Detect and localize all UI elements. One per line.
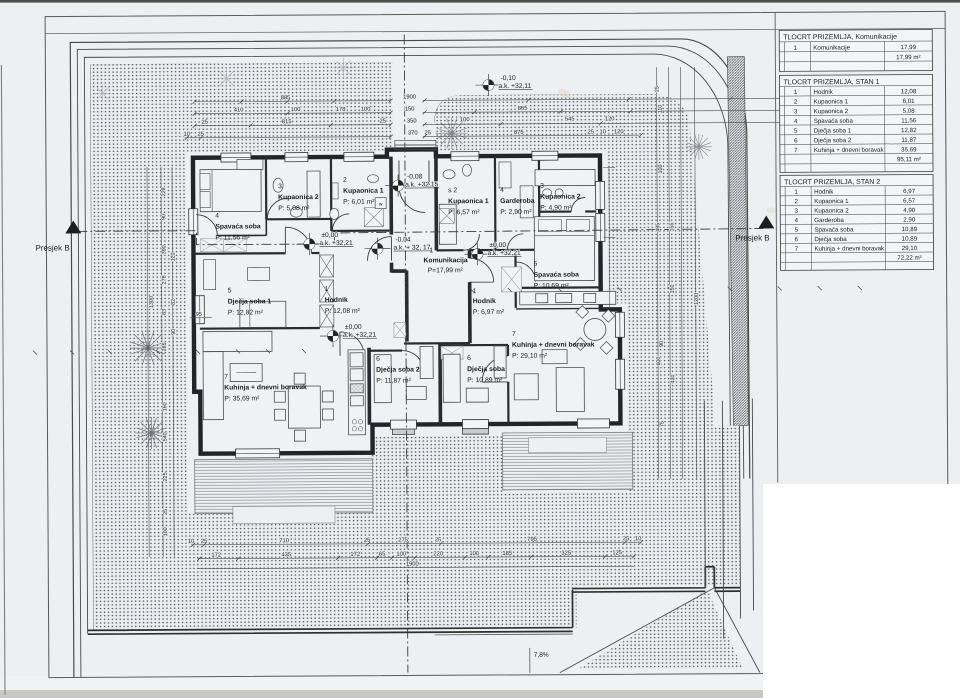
svg-text:4,90: 4,90	[903, 207, 916, 214]
svg-text:Kupaonica 1: Kupaonica 1	[814, 98, 849, 105]
svg-text:25: 25	[655, 86, 661, 92]
svg-text:72,22 m²: 72,22 m²	[897, 255, 921, 262]
svg-text:4: 4	[500, 187, 504, 194]
svg-text:430: 430	[670, 374, 676, 383]
svg-text:Komunikacije: Komunikacije	[813, 44, 850, 51]
svg-text:Hodnik: Hodnik	[814, 189, 834, 196]
svg-text:25: 25	[198, 132, 204, 138]
svg-text:P: 29,10 m²: P: 29,10 m²	[512, 353, 548, 360]
svg-text:228: 228	[161, 187, 167, 196]
svg-text:P: 10,89 m²: P: 10,89 m²	[467, 377, 503, 384]
svg-text:125: 125	[612, 550, 622, 556]
svg-text:540: 540	[162, 432, 168, 441]
svg-text:83: 83	[162, 309, 168, 315]
svg-text:100: 100	[361, 107, 371, 113]
svg-text:Dječja soba: Dječja soba	[467, 366, 505, 373]
svg-text:220: 220	[433, 551, 443, 557]
svg-text:17,99: 17,99	[901, 44, 917, 51]
svg-text:P: 2,90 m²: P: 2,90 m²	[500, 209, 532, 216]
svg-text:Spavaća soba: Spavaća soba	[814, 226, 854, 233]
svg-text:TLOCRT PRIZEMLJA, STAN 2: TLOCRT PRIZEMLJA, STAN 2	[784, 179, 880, 187]
svg-text:90: 90	[659, 341, 665, 347]
svg-text:6,01: 6,01	[903, 98, 916, 105]
svg-text:120: 120	[605, 116, 615, 122]
svg-text:-0,08: -0,08	[407, 173, 423, 180]
svg-text:2,90: 2,90	[903, 217, 916, 224]
svg-text:25: 25	[435, 537, 441, 543]
svg-text:10: 10	[600, 129, 606, 135]
svg-text:Presjek B: Presjek B	[735, 233, 769, 242]
svg-text:10: 10	[184, 132, 190, 138]
svg-text:7,8%: 7,8%	[534, 652, 549, 659]
svg-text:95,11 m²: 95,11 m²	[897, 156, 921, 163]
svg-text:172: 172	[211, 553, 221, 559]
svg-text:2: 2	[343, 177, 347, 184]
svg-text:Dječja soba: Dječja soba	[814, 236, 847, 243]
svg-text:75: 75	[659, 421, 665, 427]
svg-text:95: 95	[196, 312, 202, 318]
svg-text:Spavaća soba: Spavaća soba	[534, 272, 580, 279]
svg-text:Garderoba: Garderoba	[500, 198, 535, 205]
svg-text:12,08: 12,08	[901, 88, 917, 95]
svg-text:120: 120	[614, 129, 624, 135]
svg-text:865: 865	[518, 106, 528, 112]
svg-text:P: 10,69 m²: P: 10,69 m²	[534, 283, 570, 290]
svg-text:545: 545	[565, 117, 575, 123]
svg-text:P: 6,97 m²: P: 6,97 m²	[473, 309, 505, 316]
svg-text:1300: 1300	[149, 296, 155, 308]
svg-text:110: 110	[658, 105, 664, 114]
svg-text:1200: 1200	[694, 293, 700, 305]
svg-text:Kupaonica 2: Kupaonica 2	[278, 194, 319, 201]
svg-text:5: 5	[534, 261, 538, 268]
svg-text:3: 3	[794, 108, 798, 115]
svg-text:3: 3	[540, 183, 544, 190]
svg-text:100: 100	[658, 165, 664, 174]
svg-text:120: 120	[170, 252, 176, 261]
svg-text:TLOCRT PRIZEMLJA, Komunikacije: TLOCRT PRIZEMLJA, Komunikacije	[783, 34, 897, 42]
svg-text:29,10: 29,10	[902, 245, 918, 252]
svg-text:Komunikacija: Komunikacija	[423, 257, 467, 264]
svg-text:Kuhinja + dnevni boravak: Kuhinja + dnevni boravak	[814, 245, 885, 252]
svg-text:155: 155	[669, 222, 675, 231]
svg-text:Hodnik: Hodnik	[473, 298, 496, 305]
svg-text:±0,00: ±0,00	[345, 324, 362, 331]
svg-text:410: 410	[234, 107, 244, 113]
svg-text:370: 370	[408, 130, 418, 136]
svg-text:600: 600	[656, 357, 662, 366]
svg-text:10,89: 10,89	[902, 226, 918, 233]
svg-text:4: 4	[794, 118, 798, 125]
svg-text:65: 65	[379, 552, 385, 558]
svg-text:150: 150	[670, 284, 676, 293]
svg-text:6: 6	[794, 137, 798, 144]
svg-text:5,08: 5,08	[903, 108, 916, 115]
svg-text:25: 25	[201, 539, 207, 545]
svg-text:285: 285	[162, 342, 168, 351]
svg-text:3: 3	[278, 183, 282, 190]
svg-text:Kupaonica 2: Kupaonica 2	[814, 207, 849, 214]
svg-text:12,82: 12,82	[901, 127, 917, 134]
svg-text:1900: 1900	[403, 94, 416, 100]
svg-text:435: 435	[281, 552, 291, 558]
svg-text:25: 25	[588, 129, 594, 135]
svg-text:100: 100	[291, 107, 301, 113]
svg-text:3: 3	[794, 208, 798, 215]
svg-text:a.k. +32,21: a.k. +32,21	[487, 250, 521, 257]
svg-text:Garderoba: Garderoba	[814, 217, 844, 224]
svg-text:795: 795	[527, 537, 537, 543]
svg-text:Kupaonica 2: Kupaonica 2	[814, 108, 849, 115]
svg-text:a.k. + 32, 17: a.k. + 32, 17	[393, 244, 430, 251]
svg-text:Dječja soba 2: Dječja soba 2	[814, 137, 852, 144]
svg-text:Dječja soba 1: Dječja soba 1	[228, 298, 272, 305]
svg-text:6: 6	[795, 236, 799, 243]
svg-text:100: 100	[460, 117, 470, 123]
svg-text:Kuhinja + dnevni boravak: Kuhinja + dnevni boravak	[512, 341, 595, 348]
svg-text:P: 35,69 m²: P: 35,69 m²	[224, 395, 260, 402]
svg-text:6,97: 6,97	[903, 188, 916, 195]
svg-text:7: 7	[794, 147, 798, 154]
svg-text:17,99 m²: 17,99 m²	[896, 54, 920, 61]
svg-text:5: 5	[228, 288, 232, 295]
svg-text:1: 1	[794, 89, 798, 96]
svg-text:390: 390	[161, 245, 167, 254]
svg-text:Kuhinja + dnevni boravak: Kuhinja + dnevni boravak	[814, 147, 885, 154]
svg-text:11,56: 11,56	[901, 117, 917, 124]
svg-text:Kupaonica 1: Kupaonica 1	[343, 188, 384, 195]
svg-text:325: 325	[561, 551, 571, 557]
svg-text:160: 160	[162, 402, 168, 411]
svg-text:P: 4,90 m²: P: 4,90 m²	[540, 205, 572, 212]
svg-text:90: 90	[161, 214, 167, 220]
svg-text:Dječja soba 1: Dječja soba 1	[814, 127, 852, 134]
svg-text:1: 1	[794, 45, 798, 52]
svg-text:Kupaonica 2: Kupaonica 2	[540, 194, 581, 201]
svg-text:1900: 1900	[406, 561, 419, 567]
svg-text:Spavaća soba: Spavaća soba	[215, 223, 261, 230]
svg-text:2: 2	[794, 99, 798, 106]
svg-text:4: 4	[215, 213, 219, 220]
svg-text:a.k. +32,15: a.k. +32,15	[405, 181, 439, 188]
svg-text:6: 6	[376, 356, 380, 363]
svg-text:±0,00: ±0,00	[321, 232, 338, 239]
svg-text:Hodnik: Hodnik	[325, 297, 348, 304]
svg-text:7: 7	[512, 331, 516, 338]
svg-text:-0,10: -0,10	[500, 75, 516, 82]
svg-text:P: 11,56 m²: P: 11,56 m²	[215, 234, 250, 241]
svg-text:Hodnik: Hodnik	[814, 89, 834, 96]
svg-text:s 2: s 2	[448, 187, 457, 194]
svg-text:710: 710	[279, 538, 289, 544]
svg-text:Spavaća soba: Spavaća soba	[814, 118, 854, 125]
svg-text:7: 7	[795, 246, 799, 253]
svg-text:w: w	[379, 202, 383, 208]
svg-text:a.k. +32,11: a.k. +32,11	[498, 83, 531, 90]
svg-text:82: 82	[171, 299, 177, 305]
svg-text:1: 1	[794, 189, 798, 196]
svg-text:Presjek B: Presjek B	[35, 243, 69, 252]
svg-text:Kupaonica 1: Kupaonica 1	[814, 198, 849, 205]
svg-text:100: 100	[163, 527, 169, 536]
svg-text:TLOCRT PRIZEMLJA, STAN 1: TLOCRT PRIZEMLJA, STAN 1	[783, 79, 879, 87]
svg-text:±0,00: ±0,00	[489, 242, 506, 249]
svg-text:7: 7	[224, 374, 228, 381]
svg-text:25: 25	[201, 120, 207, 126]
svg-text:P: 12,08 m²: P: 12,08 m²	[325, 308, 361, 315]
svg-text:150: 150	[405, 106, 415, 112]
svg-text:5: 5	[795, 227, 799, 234]
svg-text:a.k. +32,21: a.k. +32,21	[319, 240, 353, 247]
svg-text:25: 25	[379, 119, 385, 125]
svg-text:P: 5,08 m²: P: 5,08 m²	[278, 205, 310, 212]
svg-text:1: 1	[325, 286, 329, 293]
svg-text:Kupaonica 1: Kupaonica 1	[448, 198, 489, 205]
svg-text:875: 875	[514, 130, 524, 136]
svg-text:P: 6,57 m²: P: 6,57 m²	[448, 209, 480, 216]
svg-text:10: 10	[635, 536, 641, 542]
svg-text:185: 185	[502, 551, 512, 557]
svg-text:225: 225	[163, 472, 169, 481]
svg-text:172: 172	[350, 552, 360, 558]
svg-text:90: 90	[171, 329, 177, 335]
svg-text:178: 178	[336, 107, 346, 113]
svg-text:11,87: 11,87	[901, 137, 917, 144]
svg-text:495: 495	[655, 223, 661, 232]
svg-text:100: 100	[469, 551, 479, 557]
svg-text:6: 6	[467, 355, 471, 362]
svg-text:350: 350	[407, 118, 417, 124]
svg-text:5: 5	[794, 128, 798, 135]
svg-text:10,89: 10,89	[902, 236, 918, 243]
svg-text:815: 815	[282, 119, 292, 125]
svg-text:275: 275	[398, 538, 408, 544]
svg-text:10: 10	[188, 539, 194, 545]
svg-text:2: 2	[794, 198, 798, 205]
svg-text:P: 12,82 m²: P: 12,82 m²	[228, 309, 264, 316]
svg-text:Dječja soba 2: Dječja soba 2	[376, 366, 420, 373]
svg-text:885: 885	[281, 95, 291, 101]
svg-text:a.k. +32,21: a.k. +32,21	[343, 332, 377, 339]
svg-text:278: 278	[162, 275, 168, 284]
svg-text:P=17,99 m²: P=17,99 m²	[428, 267, 464, 274]
svg-text:4: 4	[795, 217, 799, 224]
svg-text:100: 100	[396, 552, 406, 558]
svg-text:P: 11,87 m²: P: 11,87 m²	[376, 377, 411, 384]
svg-text:25: 25	[163, 509, 169, 515]
svg-text:-0,04: -0,04	[395, 236, 411, 243]
svg-text:6,57: 6,57	[903, 198, 916, 205]
svg-text:35,69: 35,69	[901, 146, 917, 153]
svg-text:P: 6,01 m²: P: 6,01 m²	[343, 199, 375, 206]
svg-text:Kuhinja + dnevni boravak: Kuhinja + dnevni boravak	[224, 384, 307, 391]
